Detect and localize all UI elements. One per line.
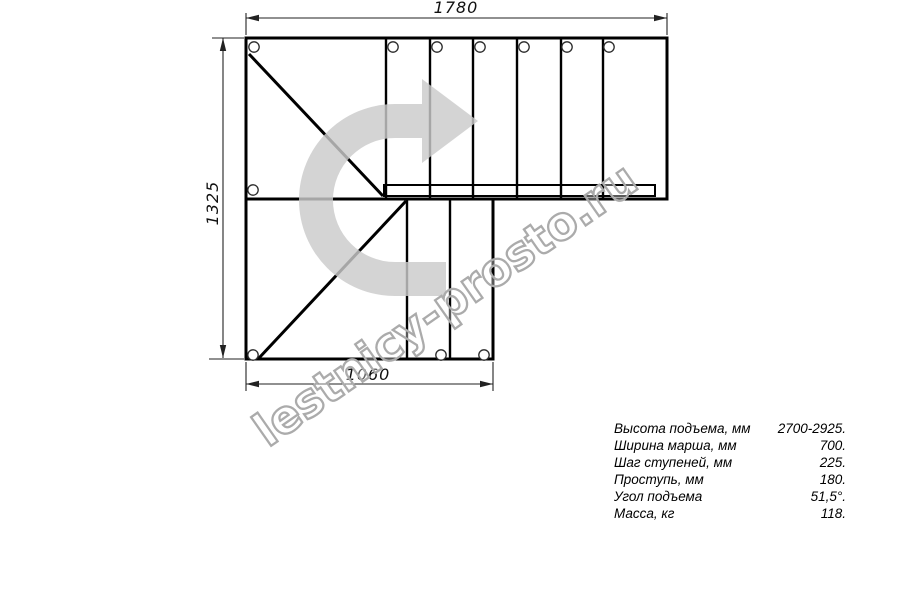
- dimension-left-label: 1325: [203, 181, 222, 226]
- mounting-hole: [562, 42, 572, 52]
- dimension-arrowhead: [220, 38, 226, 51]
- spec-row-height: Высота подъема, мм 2700-2925.: [614, 420, 846, 437]
- dimension-left: 1325: [203, 38, 244, 359]
- spec-table: Высота подъема, мм 2700-2925. Ширина мар…: [614, 420, 846, 522]
- spec-row-flight-width: Ширина марша, мм 700.: [614, 437, 846, 454]
- dimension-top: 1780: [246, 0, 667, 35]
- mounting-hole: [248, 350, 258, 360]
- mounting-hole: [436, 350, 446, 360]
- mounting-hole: [388, 42, 398, 52]
- mounting-hole: [432, 42, 442, 52]
- dimension-arrowhead: [654, 15, 667, 21]
- dimension-arrowhead: [246, 15, 259, 21]
- spec-value: 118.: [821, 505, 846, 522]
- spec-row-climb-angle: Угол подъема 51,5°.: [614, 488, 846, 505]
- spec-value: 51,5°.: [811, 488, 846, 505]
- dimension-arrowhead: [220, 345, 226, 358]
- mounting-hole: [604, 42, 614, 52]
- spec-label: Ширина марша, мм: [614, 437, 737, 454]
- dimension-arrowhead: [480, 381, 493, 387]
- dimension-arrowhead: [246, 381, 259, 387]
- spec-label: Угол подъема: [614, 488, 702, 505]
- mounting-hole: [249, 42, 259, 52]
- mounting-hole: [519, 42, 529, 52]
- spec-value: 700.: [820, 437, 846, 454]
- mounting-hole: [248, 185, 258, 195]
- mounting-hole: [475, 42, 485, 52]
- mounting-hole: [479, 350, 489, 360]
- spec-label: Проступь, мм: [614, 471, 704, 488]
- dimension-top-label: 1780: [434, 0, 479, 17]
- stair-drawing-page: 1780 1325 1060 le: [0, 0, 900, 600]
- spec-value: 180.: [820, 471, 846, 488]
- spec-row-step-pitch: Шаг ступеней, мм 225.: [614, 454, 846, 471]
- spec-label: Шаг ступеней, мм: [614, 454, 732, 471]
- spec-value: 2700-2925.: [778, 420, 846, 437]
- spec-value: 225.: [820, 454, 846, 471]
- spec-row-mass: Масса, кг 118.: [614, 505, 846, 522]
- spec-label: Высота подъема, мм: [614, 420, 750, 437]
- spec-label: Масса, кг: [614, 505, 674, 522]
- spec-row-tread-depth: Проступь, мм 180.: [614, 471, 846, 488]
